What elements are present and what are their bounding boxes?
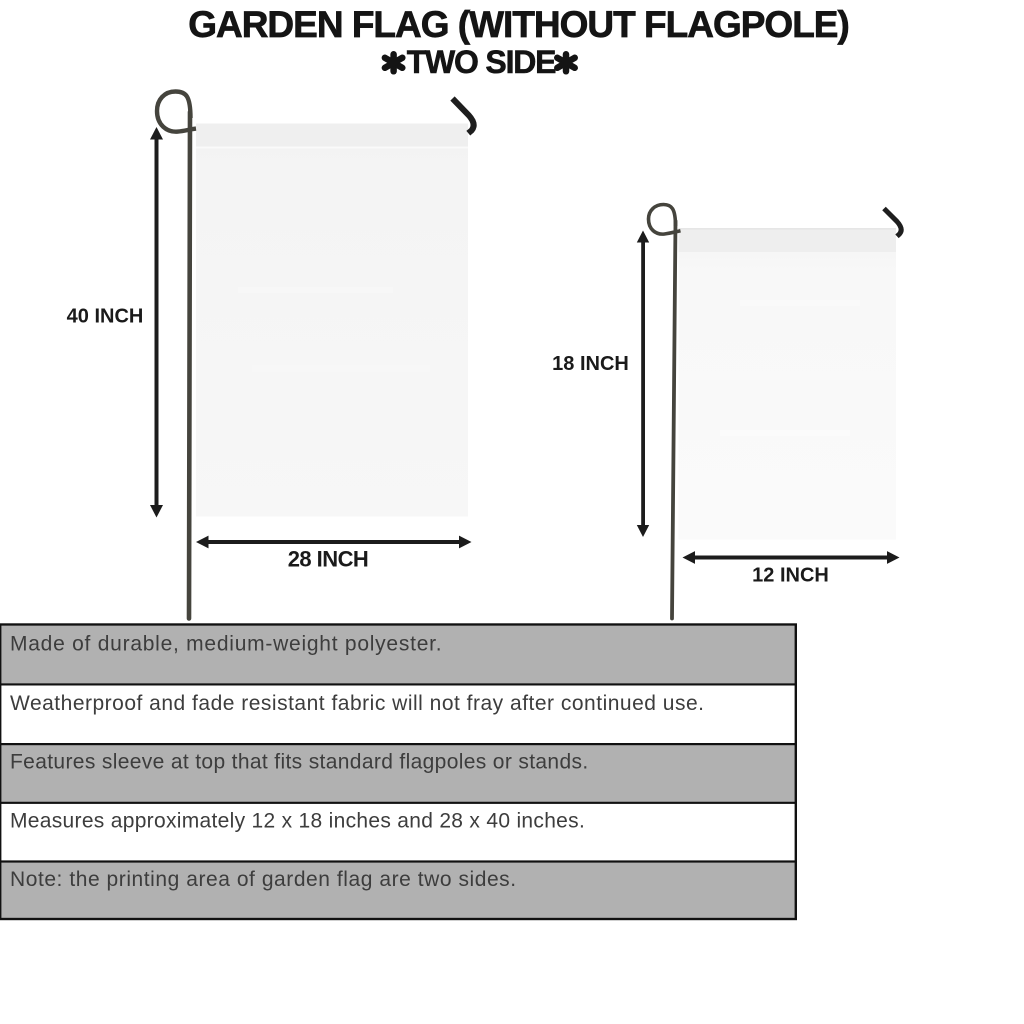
svg-text:Made of durable, medium-weight: Made of durable, medium-weight polyester… [10,633,442,656]
svg-text:40 INCH: 40 INCH [67,306,144,328]
svg-text:GARDEN FLAG (WITHOUT FLAGPOLE): GARDEN FLAG (WITHOUT FLAGPOLE) [188,4,849,45]
svg-text:12 INCH: 12 INCH [752,565,829,587]
svg-text:TWO SIDE: TWO SIDE [407,44,556,80]
svg-text:18 INCH: 18 INCH [552,353,629,375]
svg-text:28 INCH: 28 INCH [288,547,369,572]
svg-text:Features sleeve at top that fi: Features sleeve at top that fits standar… [10,751,589,774]
svg-text:Weatherproof and fade resistan: Weatherproof and fade resistant fabric w… [10,692,704,715]
svg-text:Measures approximately 12 x 18: Measures approximately 12 x 18 inches an… [10,810,585,833]
svg-text:Note: the printing area of gar: Note: the printing area of garden flag a… [10,868,517,891]
